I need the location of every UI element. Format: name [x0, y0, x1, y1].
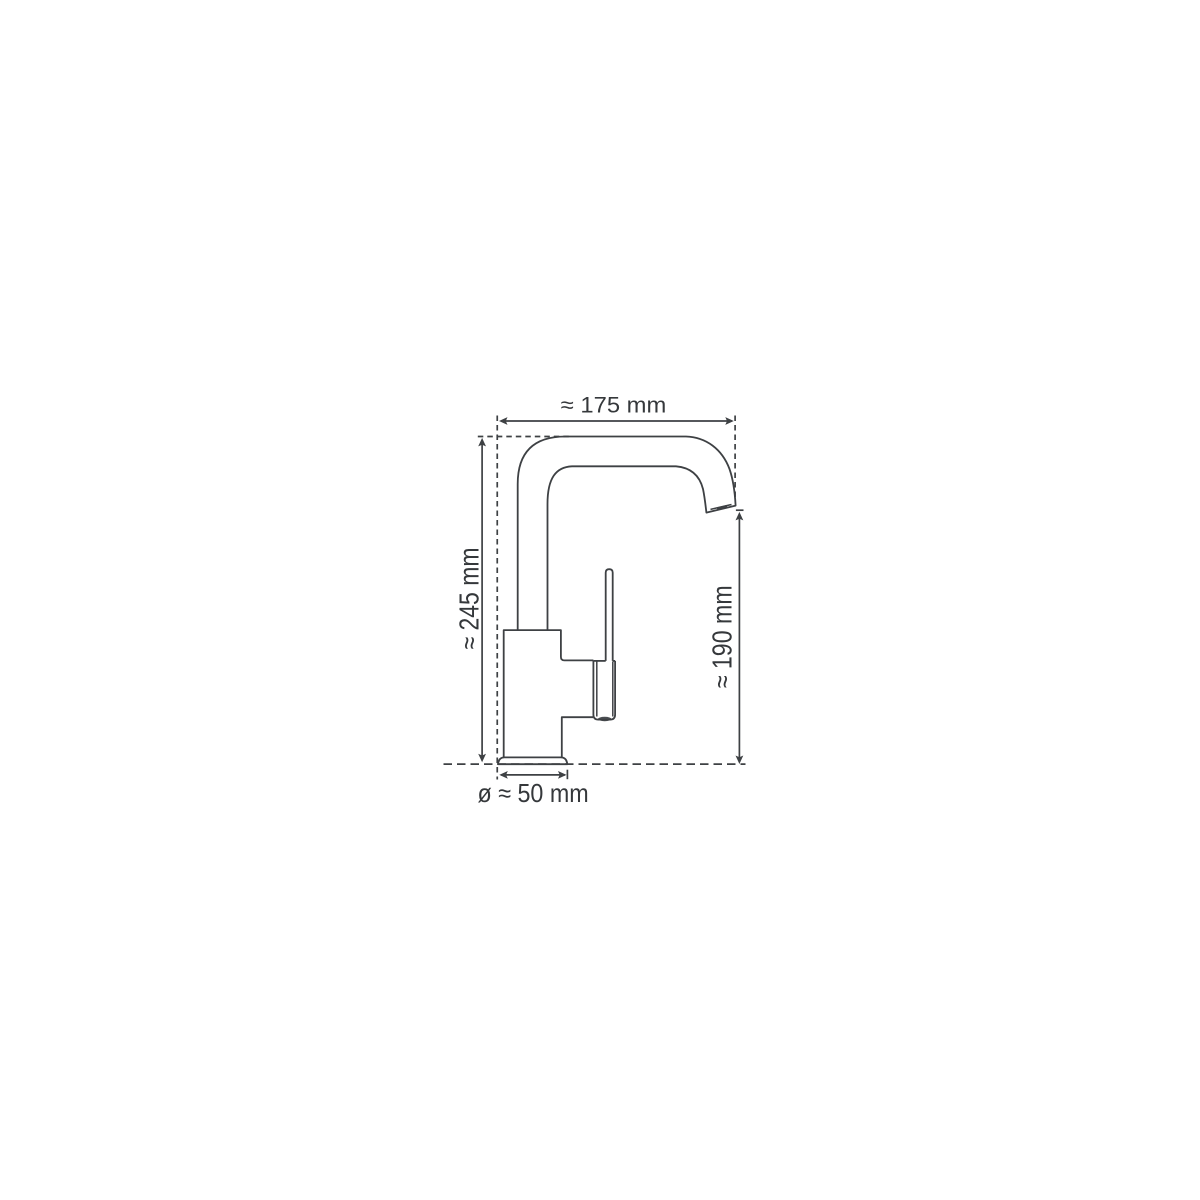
- svg-text:≈ 190 mm: ≈ 190 mm: [707, 585, 738, 688]
- svg-text:ø ≈ 50 mm: ø ≈ 50 mm: [478, 780, 589, 808]
- svg-text:≈ 245 mm: ≈ 245 mm: [454, 548, 485, 650]
- svg-text:≈ 175 mm: ≈ 175 mm: [561, 393, 667, 418]
